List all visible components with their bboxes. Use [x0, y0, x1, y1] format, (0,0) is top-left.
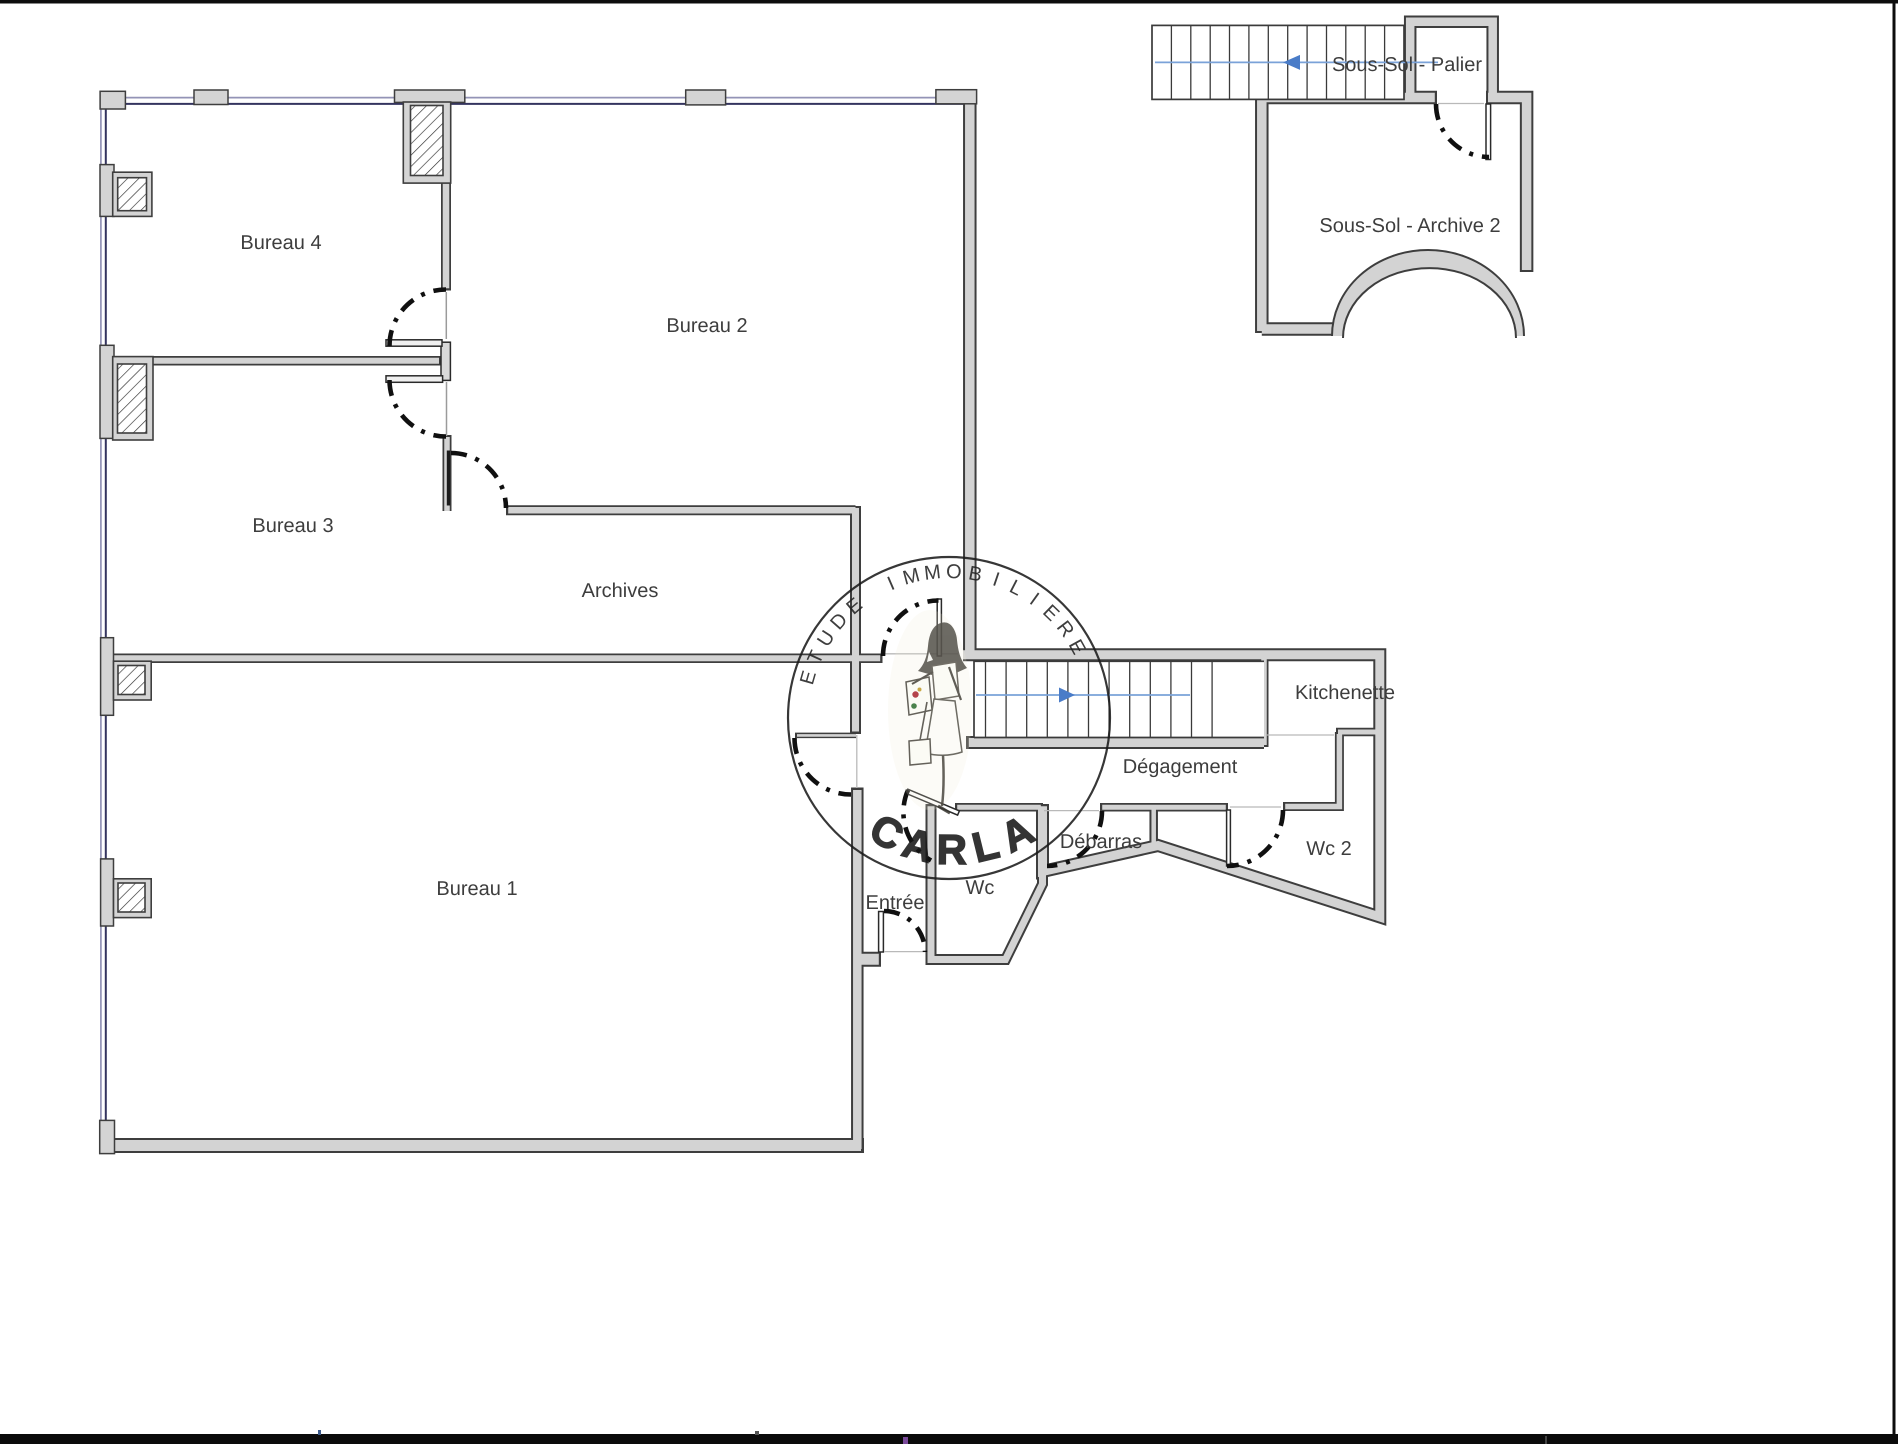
svg-text:Kitchenette: Kitchenette — [1295, 682, 1395, 704]
svg-text:Sous-Sol - Palier: Sous-Sol - Palier — [1332, 54, 1482, 76]
svg-text:Dégagement: Dégagement — [1123, 756, 1238, 778]
svg-text:Bureau 2: Bureau 2 — [666, 315, 747, 337]
svg-text:Archives: Archives — [582, 580, 659, 602]
svg-text:Wc: Wc — [966, 877, 995, 899]
svg-text:R: R — [936, 826, 967, 873]
svg-text:Bureau 3: Bureau 3 — [252, 515, 333, 537]
svg-text:Entrée: Entrée — [866, 892, 925, 914]
svg-text:Bureau 1: Bureau 1 — [436, 878, 517, 900]
svg-text:Bureau 4: Bureau 4 — [240, 232, 321, 254]
svg-text:O: O — [946, 561, 962, 584]
svg-text:Sous-Sol - Archive 2: Sous-Sol - Archive 2 — [1319, 215, 1500, 237]
svg-text:M: M — [923, 561, 942, 585]
svg-text:Débarras: Débarras — [1060, 831, 1142, 853]
svg-text:Wc 2: Wc 2 — [1306, 838, 1352, 860]
